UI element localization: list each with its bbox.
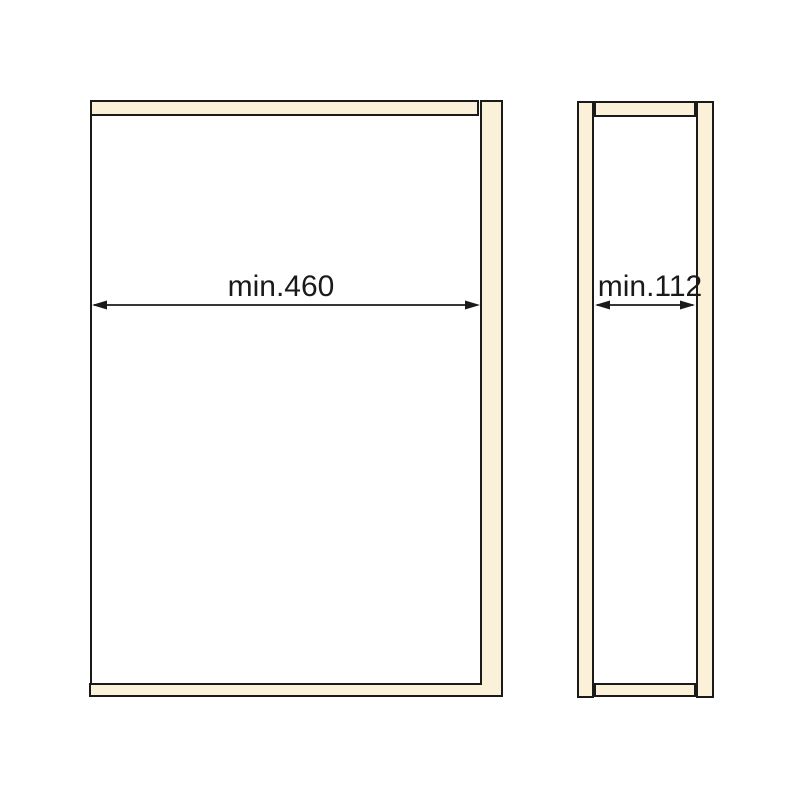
cabinet-dimension-drawing: min.460 min.112: [0, 0, 800, 800]
depth-dimension-label: min.112: [598, 270, 703, 303]
front-view: min.460: [90, 101, 502, 696]
side-view-bottom-panel: [595, 684, 695, 696]
side-view-left-panel: [578, 102, 593, 697]
drawing-canvas: min.460 min.112: [0, 0, 800, 800]
side-view-right-panel: [697, 102, 713, 697]
side-view-top-panel: [595, 102, 695, 116]
side-view: min.112: [578, 102, 713, 697]
arrowhead-right-icon: [465, 301, 480, 310]
arrowhead-left-icon: [92, 301, 107, 310]
width-dimension-label: min.460: [228, 270, 335, 303]
front-view-side-and-bottom-panel: [90, 101, 502, 696]
front-view-top-panel: [91, 101, 478, 115]
